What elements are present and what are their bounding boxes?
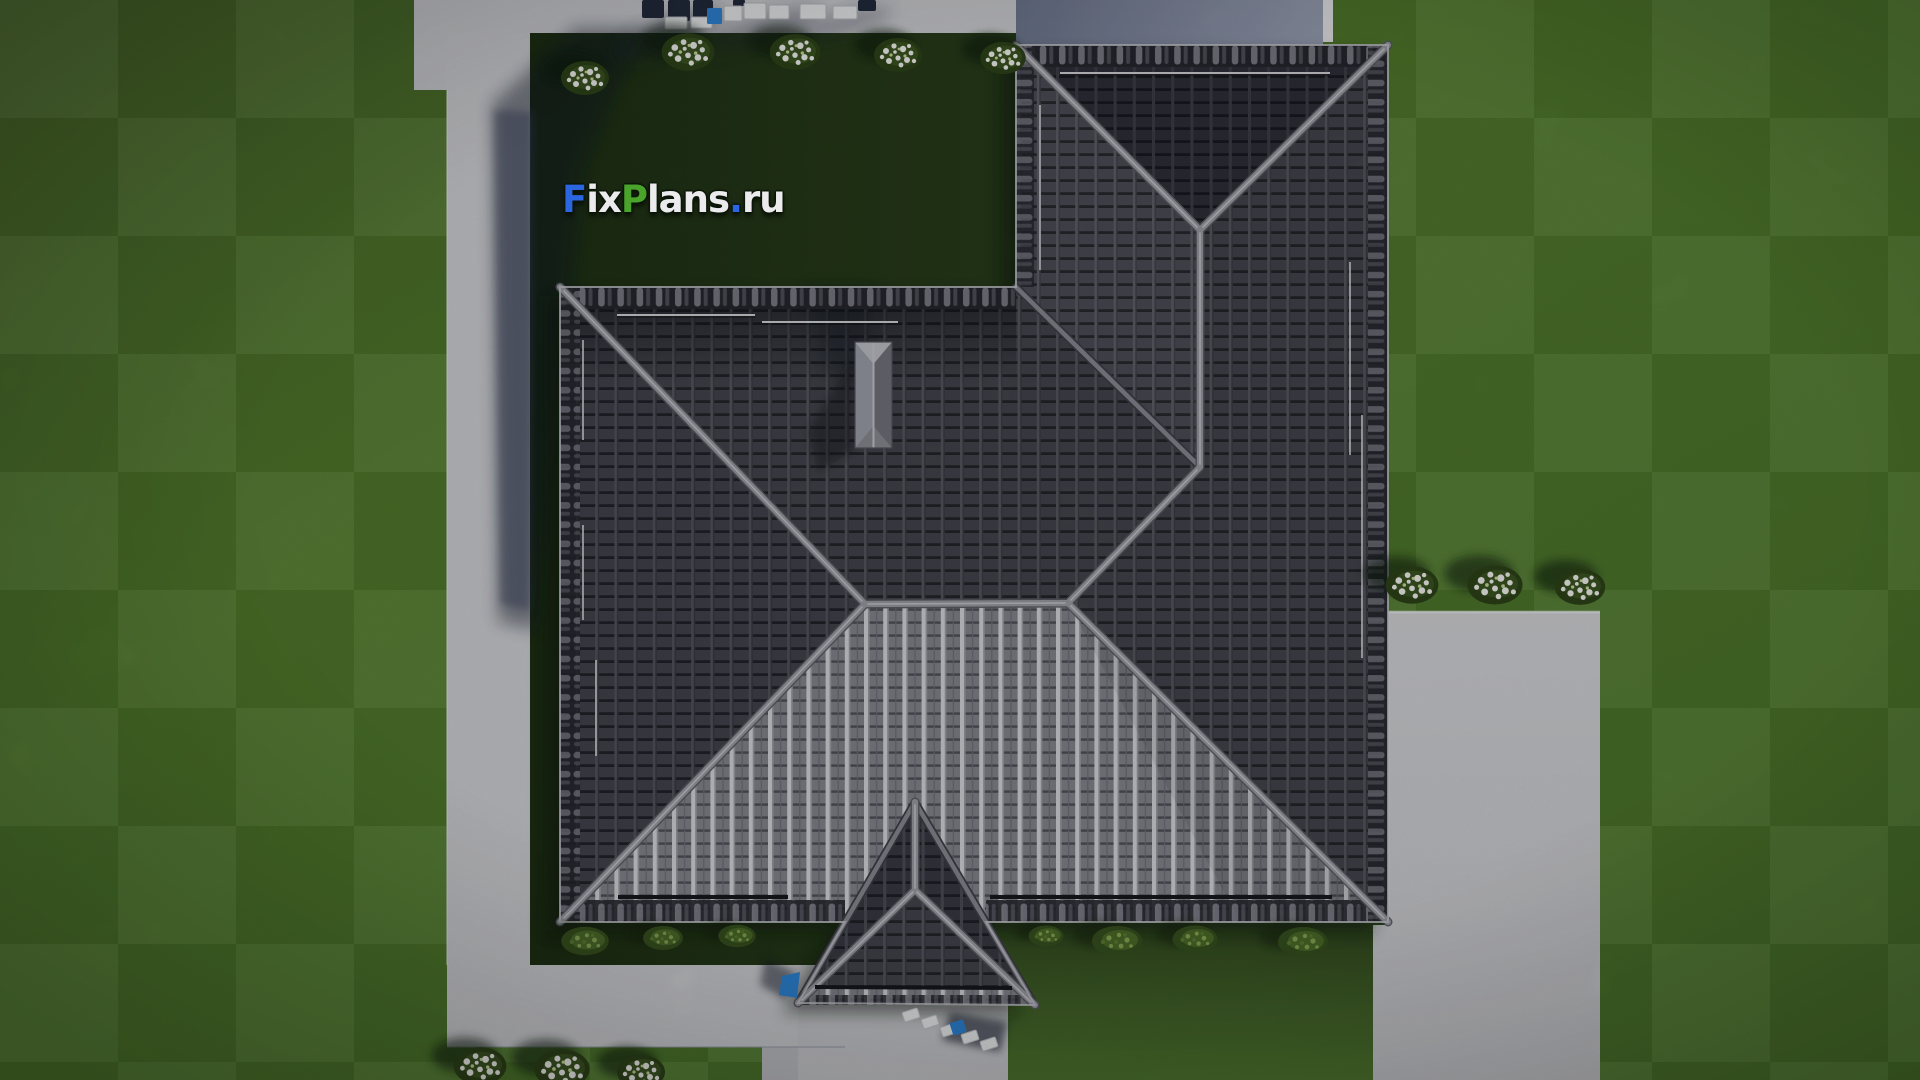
watermark-segment: lans: [647, 178, 729, 221]
watermark-segment: P: [621, 178, 647, 221]
scene-canvas: [0, 0, 1920, 1080]
aerial-render: FixPlans.ru: [0, 0, 1920, 1080]
fixplans-watermark: FixPlans.ru: [562, 181, 785, 218]
watermark-segment: F: [562, 178, 586, 221]
watermark-segment: ix: [586, 178, 621, 221]
watermark-segment: .: [729, 178, 742, 221]
grain-fine: [0, 0, 1920, 1080]
watermark-segment: ru: [742, 178, 785, 221]
